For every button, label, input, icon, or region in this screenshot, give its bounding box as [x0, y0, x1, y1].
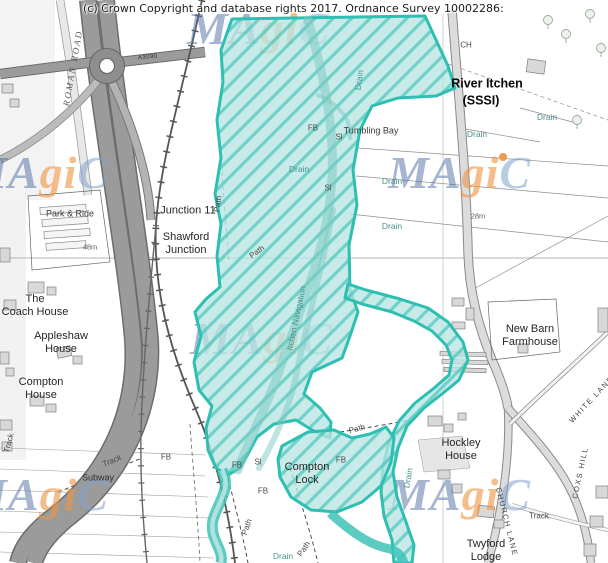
copyright-text: (c) Crown Copyright and database rights …: [83, 2, 504, 15]
sssi-polygon-compton-lock[interactable]: [278, 427, 394, 512]
map-viewport[interactable]: MAgiCMAgiCMAgiCMAgiCMAgiCMAgiC River It: [0, 0, 608, 563]
sssi-overlay: [0, 0, 608, 563]
sssi-polygon-river-strip[interactable]: [345, 284, 468, 563]
